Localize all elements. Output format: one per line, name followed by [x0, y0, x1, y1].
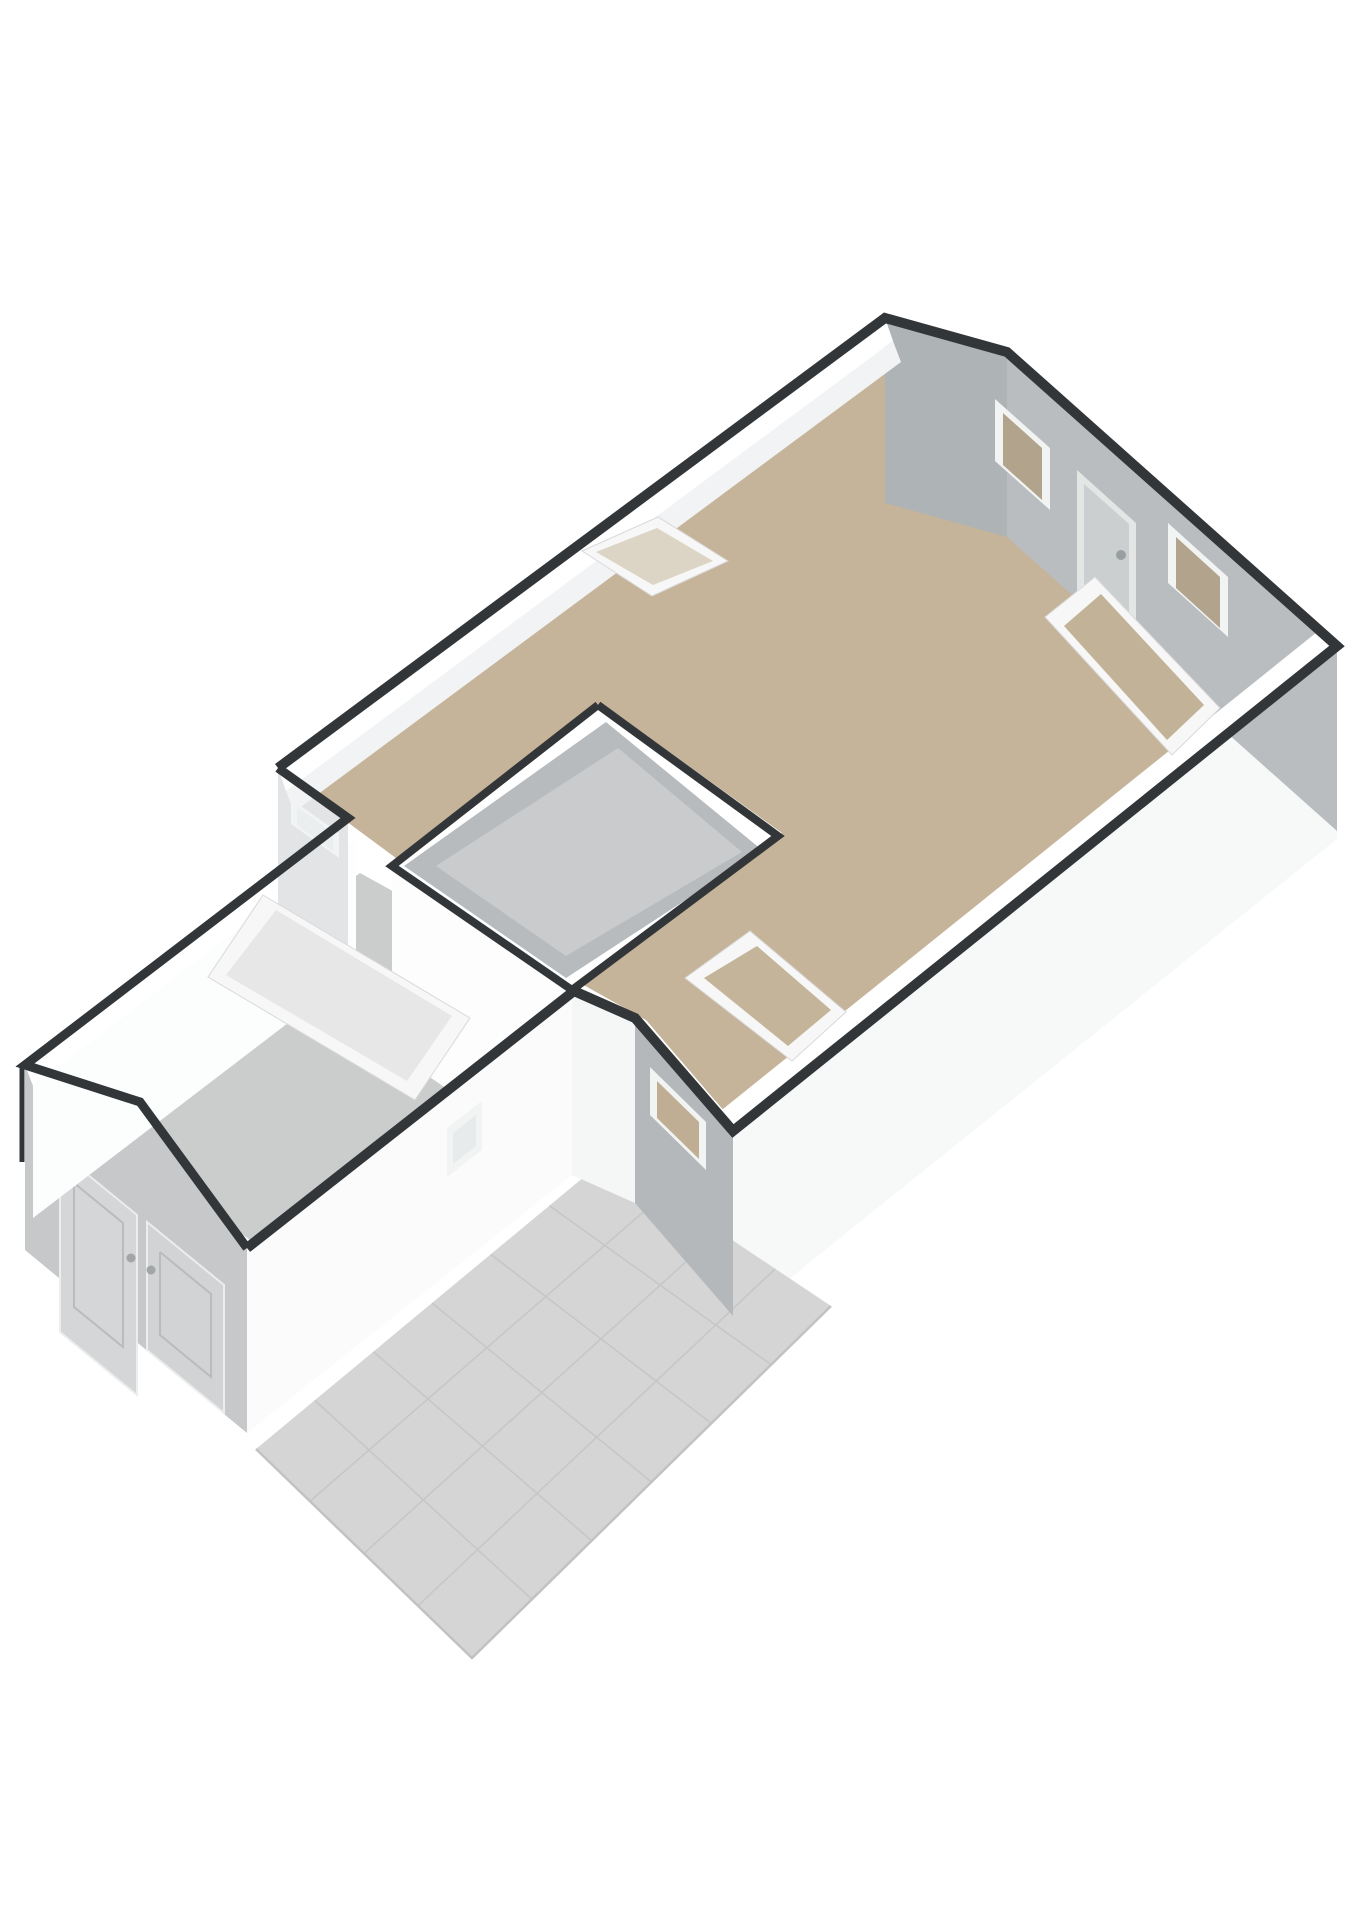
- gable-door-handle-right: [147, 1266, 156, 1275]
- floorplan-canvas: [0, 0, 1358, 1920]
- ne-wall-door-handle: [1116, 550, 1126, 560]
- floorplan-3d-render: [0, 0, 1358, 1920]
- gable-door-handle-left: [127, 1254, 136, 1263]
- connector-wall-ext: [572, 990, 635, 1203]
